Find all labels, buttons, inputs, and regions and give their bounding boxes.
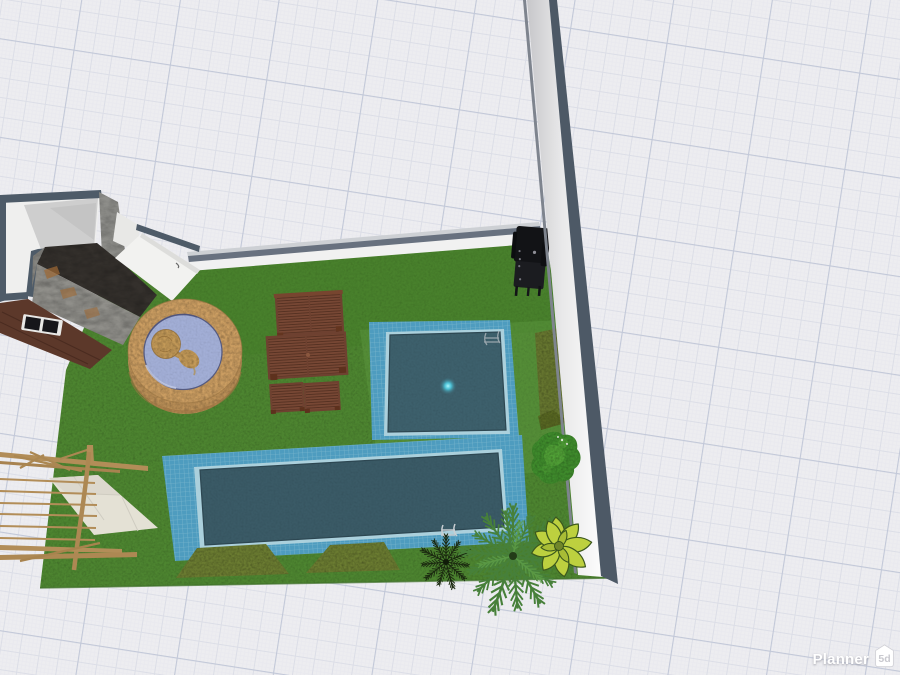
- svg-text:5d: 5d: [878, 653, 890, 665]
